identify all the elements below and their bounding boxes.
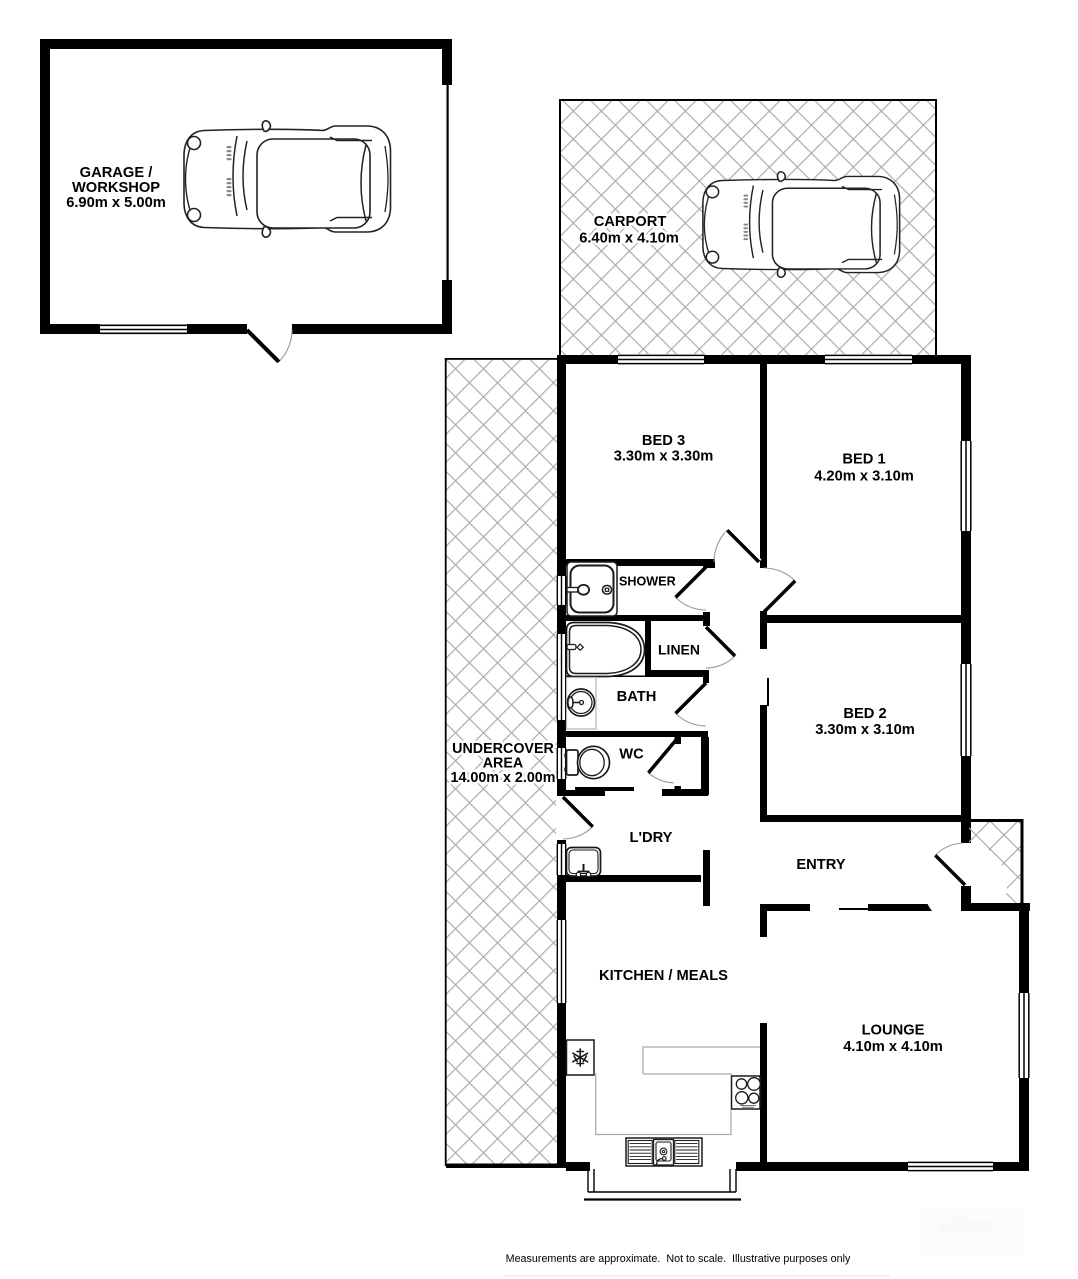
svg-text:SHOWER: SHOWER bbox=[619, 575, 676, 589]
svg-text:4.20m x 3.10m: 4.20m x 3.10m bbox=[814, 469, 914, 485]
svg-text:KITCHEN / MEALS: KITCHEN / MEALS bbox=[599, 968, 728, 984]
svg-text:6.40m x 4.10m: 6.40m x 4.10m bbox=[579, 231, 679, 247]
svg-text:ENTRY: ENTRY bbox=[796, 857, 845, 873]
svg-text:GARAGE /: GARAGE / bbox=[80, 165, 153, 181]
svg-text:WORKSHOP: WORKSHOP bbox=[72, 180, 160, 196]
svg-text:WC: WC bbox=[619, 747, 644, 763]
svg-text:Measurements are approximate.: Measurements are approximate. Not to sca… bbox=[506, 1253, 851, 1265]
svg-text:4.10m x 4.10m: 4.10m x 4.10m bbox=[843, 1039, 943, 1055]
svg-text:BED 2: BED 2 bbox=[843, 706, 886, 722]
svg-text:L'DRY: L'DRY bbox=[630, 830, 673, 846]
svg-text:BED 1: BED 1 bbox=[842, 452, 885, 468]
svg-text:14.00m x 2.00m: 14.00m x 2.00m bbox=[451, 770, 556, 786]
svg-text:LINEN: LINEN bbox=[658, 642, 700, 658]
svg-text:CARPORT: CARPORT bbox=[594, 214, 667, 230]
svg-text:LOUNGE: LOUNGE bbox=[862, 1023, 925, 1039]
svg-text:3.30m x 3.30m: 3.30m x 3.30m bbox=[614, 449, 714, 465]
svg-text:BED 3: BED 3 bbox=[642, 433, 685, 449]
svg-text:BATH: BATH bbox=[617, 689, 657, 705]
svg-text:3.30m x 3.10m: 3.30m x 3.10m bbox=[815, 722, 915, 738]
svg-text:6.90m x 5.00m: 6.90m x 5.00m bbox=[66, 195, 166, 211]
